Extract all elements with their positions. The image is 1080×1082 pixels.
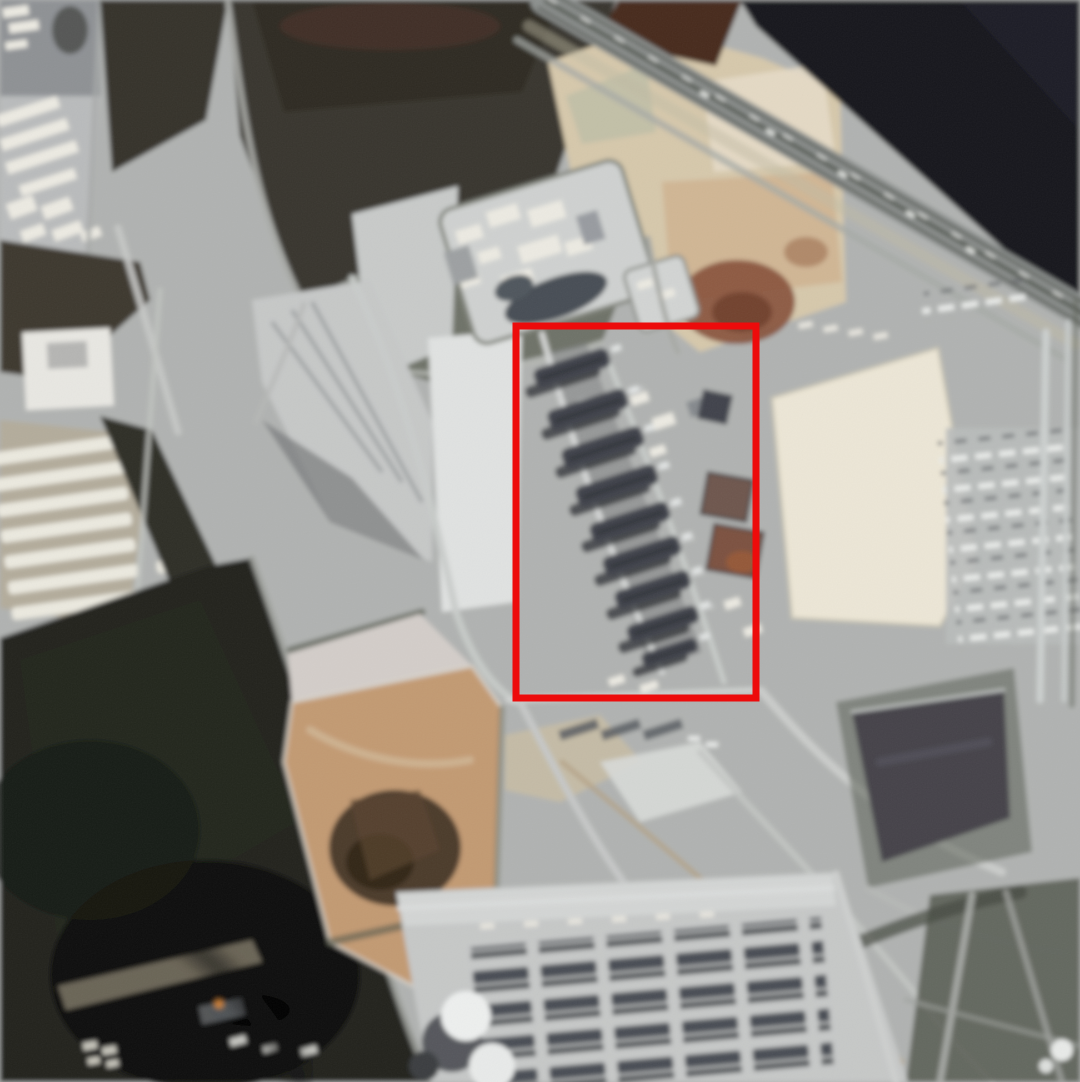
satellite-screenshot — [0, 0, 1080, 1082]
satellite-image — [0, 0, 1080, 1082]
photo-grain — [0, 0, 1080, 1082]
